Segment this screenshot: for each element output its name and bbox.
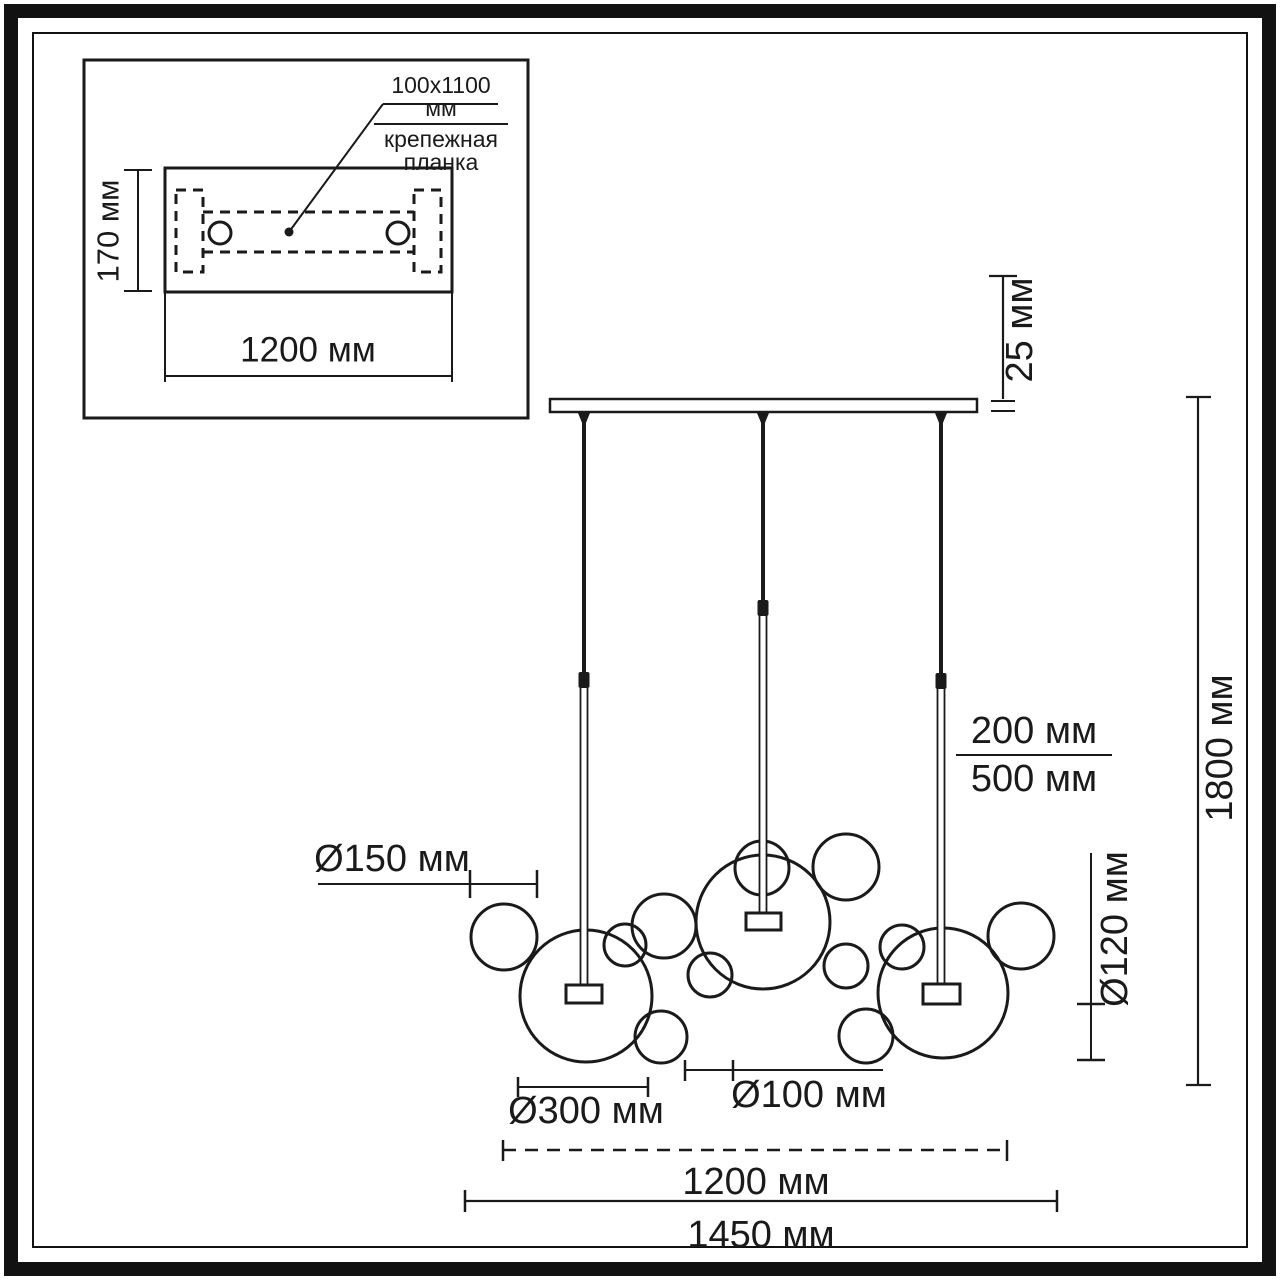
cord-length-fraction: 200 мм 500 мм — [956, 712, 1112, 798]
lamp-socket — [746, 913, 781, 930]
overall-height-label: 1800 мм — [1201, 674, 1241, 821]
bubble-150-diameter-label: Ø150 мм — [314, 840, 470, 880]
bubble-300-diameter-label: Ø300 мм — [508, 1092, 664, 1132]
glass-bubble — [824, 944, 868, 988]
rod-shaft-fill — [581, 688, 588, 988]
mounting-plate-name-line2: планка — [404, 149, 479, 175]
glass-bubble — [632, 894, 696, 958]
canopy-thickness-label: 25 мм — [1001, 277, 1041, 382]
glass-bubble — [839, 1009, 893, 1063]
glass-bubble — [880, 925, 924, 969]
rod-shaft-fill — [760, 616, 767, 916]
lamp-socket — [923, 984, 960, 1004]
inset-height-dimension-label: 170 мм — [93, 180, 126, 283]
glass-bubble — [471, 904, 537, 970]
rod-shaft-fill — [938, 689, 945, 987]
glass-bubble — [688, 953, 732, 997]
technical-drawing — [0, 0, 1280, 1280]
lamp-socket — [566, 985, 602, 1003]
ceiling-bar — [550, 399, 977, 412]
mounting-plate-callout: 100x1100 мм крепежная планка — [374, 74, 508, 174]
cable-connector — [579, 672, 590, 688]
lamp-dimension-sheet: { "colors": { "ink": "#1a1a1a", "paper":… — [0, 0, 1280, 1280]
glass-bubble — [813, 834, 879, 900]
cord-lower-label: 500 мм — [956, 756, 1112, 798]
bubble-120-diameter-label: Ø120 мм — [1096, 851, 1136, 1007]
overall-width-label: 1450 мм — [687, 1216, 834, 1256]
cord-upper-label: 200 мм — [956, 712, 1112, 756]
bubble-100-diameter-label: Ø100 мм — [731, 1076, 887, 1116]
glass-bubble — [988, 903, 1054, 969]
mounting-plate-size-label: 100x1100 мм — [374, 74, 508, 125]
glass-bubble — [635, 1011, 687, 1063]
inset-width-dimension-label: 1200 мм — [240, 333, 376, 370]
canopy-width-label: 1200 мм — [682, 1163, 829, 1203]
cable-connector — [936, 673, 947, 689]
cable-connector — [758, 600, 769, 616]
